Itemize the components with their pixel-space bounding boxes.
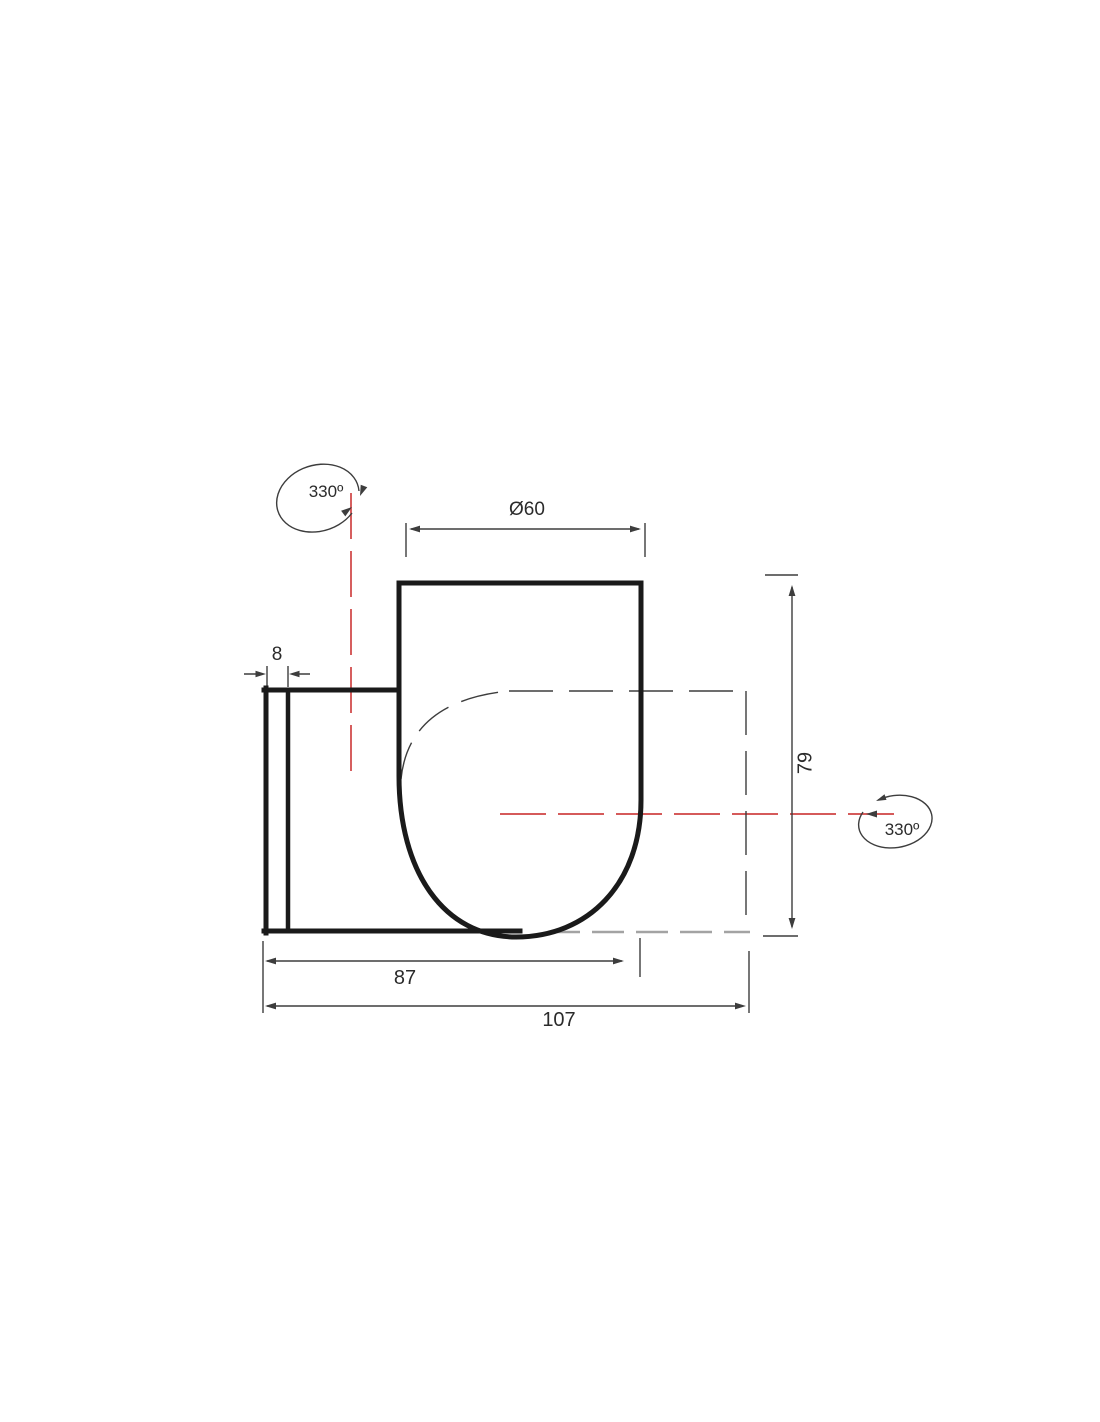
centerline-group [351, 493, 899, 814]
arrowhead-plate-left [256, 671, 267, 677]
swing-arc [401, 691, 509, 779]
lamp-body-outline [399, 583, 641, 937]
arrowhead-rotation-top-a [360, 485, 367, 496]
arrowhead-79-bottom [789, 918, 796, 929]
arrowhead-rotation-right-b [876, 794, 887, 801]
text-group: Ø60 8 87 107 79 330º 330º [272, 482, 920, 1031]
drawing-page: Ø60 8 87 107 79 330º 330º [0, 0, 1100, 1422]
arrowhead-107-left [265, 1003, 276, 1010]
label-height: 79 [794, 752, 816, 774]
arrowhead-87-left [265, 958, 276, 965]
arrowhead-87-right [613, 958, 624, 965]
arrowhead-diameter-right [630, 526, 641, 533]
outline-group [264, 583, 641, 937]
technical-drawing-canvas: Ø60 8 87 107 79 330º 330º [0, 0, 1100, 1422]
label-rotation-right: 330º [885, 820, 920, 839]
label-body-depth: 87 [394, 967, 416, 989]
label-total-depth: 107 [542, 1009, 575, 1031]
arrowhead-rotation-right-a [866, 811, 877, 818]
label-plate-thickness: 8 [272, 644, 283, 665]
arrowhead-diameter-left [409, 526, 420, 533]
label-rotation-top: 330º [309, 482, 344, 501]
arrowhead-107-right [735, 1003, 746, 1010]
arrowhead-plate-right [289, 671, 300, 677]
arrowhead-79-top [789, 585, 796, 596]
label-diameter: Ø60 [509, 499, 545, 520]
